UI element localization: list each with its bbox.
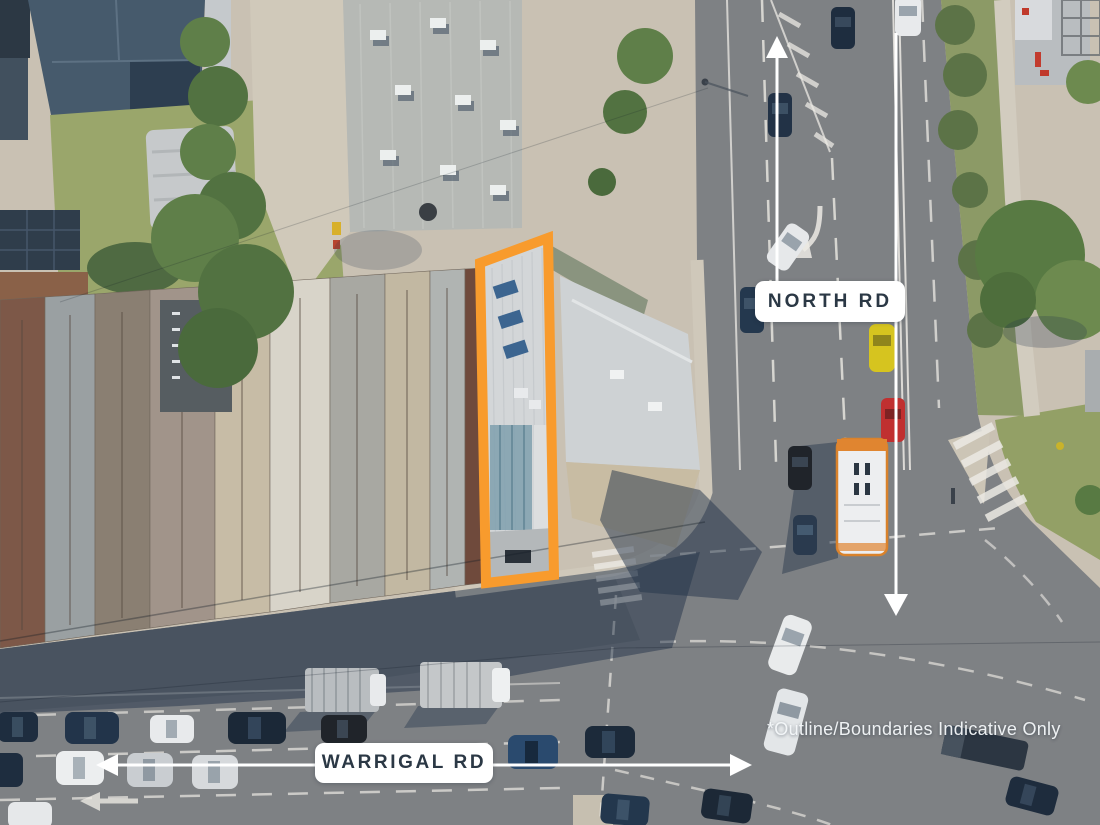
aerial-photo: NORTH RD WARRIGAL RD *Outline/Boundaries… (0, 0, 1100, 825)
north-rd-down-arrow (884, 33, 908, 616)
property-outline (480, 238, 554, 583)
north-rd-label-text: NORTH RD (768, 291, 892, 313)
warrigal-rd-label: WARRIGAL RD (315, 743, 493, 783)
north-rd-label: NORTH RD (755, 281, 905, 322)
warrigal-rd-left-arrow (96, 754, 315, 776)
annotations (0, 0, 1100, 825)
warrigal-rd-label-text: WARRIGAL RD (322, 752, 486, 774)
north-rd-up-arrow (766, 36, 788, 281)
warrigal-rd-right-arrow (493, 754, 752, 776)
boundaries-disclaimer: *Outline/Boundaries Indicative Only (767, 719, 1061, 740)
